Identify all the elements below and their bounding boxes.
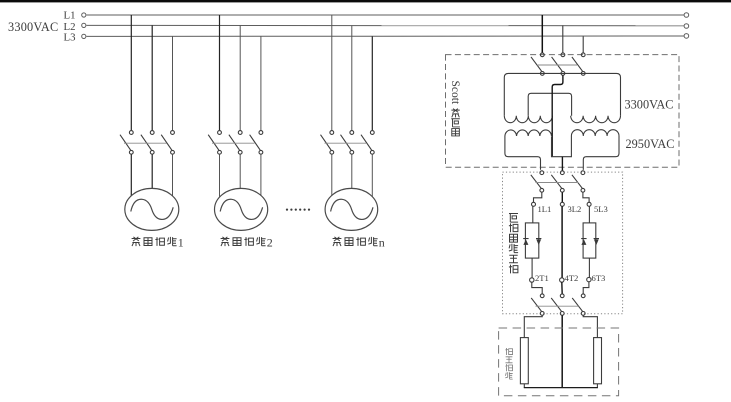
- svg-text:n: n: [379, 236, 385, 250]
- svg-text:Scott: Scott: [449, 81, 461, 105]
- svg-text:L1: L1: [64, 10, 76, 22]
- svg-text:3L2: 3L2: [568, 204, 582, 214]
- svg-text:4T2: 4T2: [565, 273, 579, 283]
- svg-text:5L3: 5L3: [594, 204, 608, 214]
- svg-text:1L1: 1L1: [538, 204, 552, 214]
- svg-text:2: 2: [267, 236, 273, 250]
- svg-text:6T3: 6T3: [592, 273, 606, 283]
- svg-text:1: 1: [178, 236, 184, 250]
- svg-text:3300VAC: 3300VAC: [8, 20, 58, 34]
- svg-text:2T1: 2T1: [535, 273, 549, 283]
- svg-text:3300VAC: 3300VAC: [625, 98, 674, 112]
- svg-text:L3: L3: [64, 32, 76, 44]
- svg-text:2950VAC: 2950VAC: [626, 137, 675, 151]
